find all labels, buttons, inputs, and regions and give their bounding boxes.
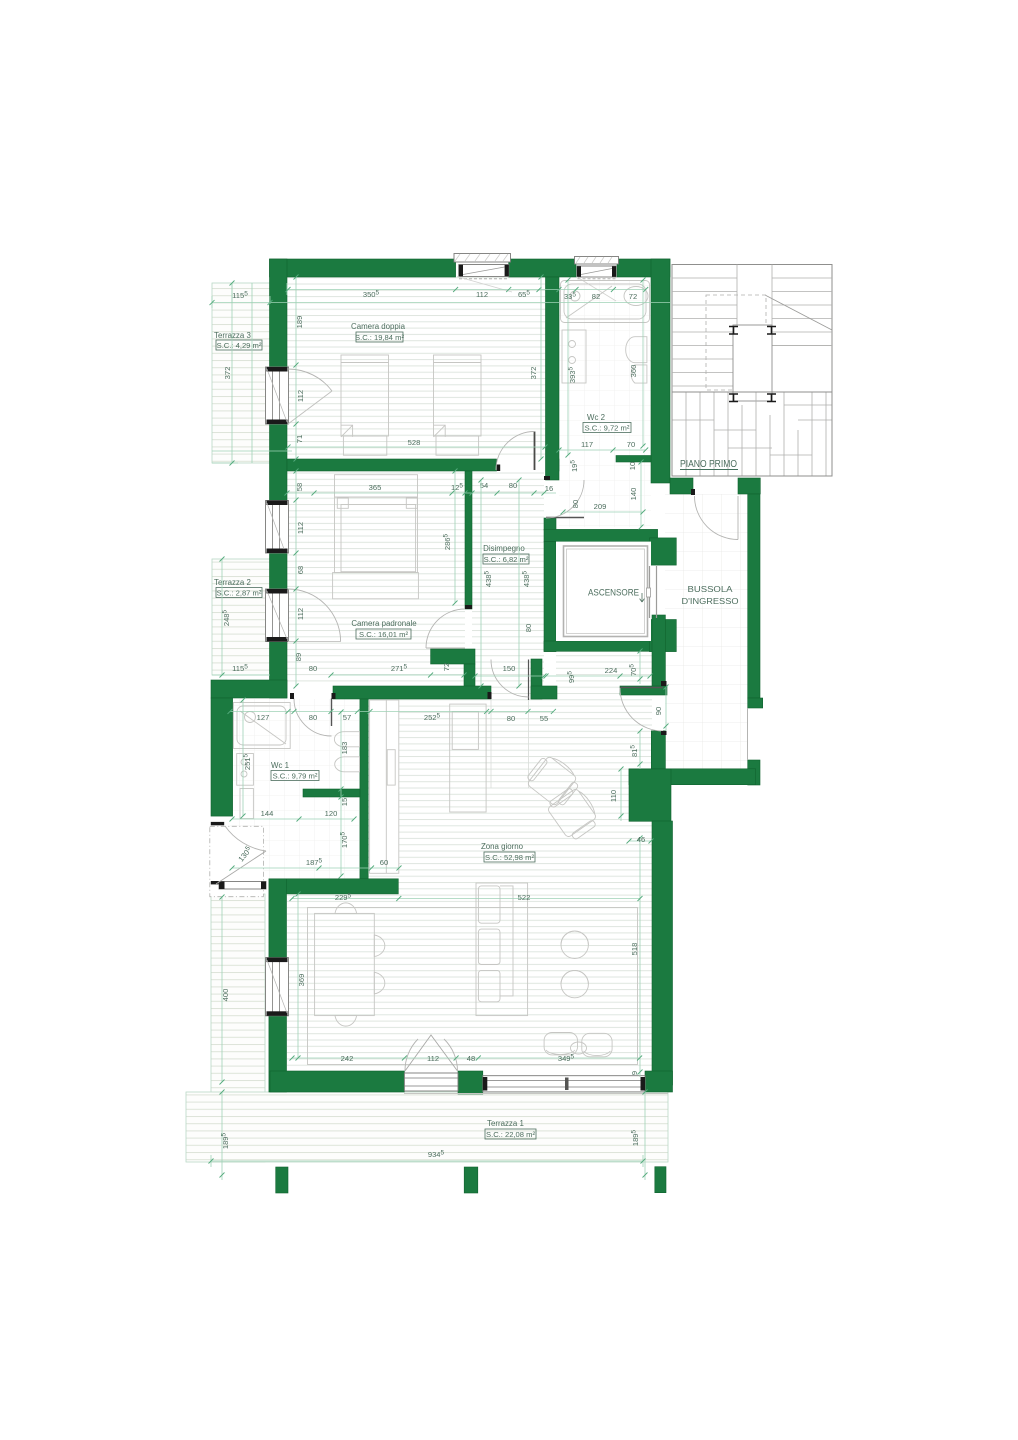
svg-text:S.C.: 52,98 m²: S.C.: 52,98 m² [485, 853, 534, 862]
svg-text:112: 112 [427, 1054, 439, 1063]
svg-text:ASCENSORE: ASCENSORE [588, 588, 639, 598]
svg-text:224: 224 [605, 666, 618, 675]
svg-text:15: 15 [340, 798, 349, 806]
svg-text:Zona giorno: Zona giorno [481, 842, 524, 851]
svg-text:112: 112 [296, 608, 305, 620]
svg-text:127: 127 [257, 713, 270, 722]
svg-text:S.C.: 16,01 m²: S.C.: 16,01 m² [359, 630, 408, 639]
svg-text:112: 112 [296, 522, 305, 534]
svg-text:Camera doppia: Camera doppia [351, 322, 406, 331]
svg-text:72: 72 [442, 663, 451, 671]
svg-text:80: 80 [509, 481, 517, 490]
svg-text:528: 528 [408, 438, 421, 447]
svg-text:55: 55 [540, 714, 548, 723]
svg-text:BUSSOLA: BUSSOLA [688, 585, 734, 594]
svg-text:365: 365 [369, 483, 382, 492]
svg-text:372: 372 [529, 367, 538, 380]
svg-text:Camera padronale: Camera padronale [351, 619, 417, 628]
svg-text:71: 71 [295, 435, 304, 443]
svg-text:72: 72 [629, 292, 637, 301]
svg-text:144: 144 [261, 809, 274, 818]
svg-text:9: 9 [630, 1071, 639, 1075]
svg-text:369: 369 [297, 974, 306, 987]
svg-text:183: 183 [340, 742, 349, 755]
svg-text:16: 16 [545, 484, 553, 493]
svg-text:117: 117 [581, 440, 593, 449]
svg-text:60: 60 [380, 858, 388, 867]
svg-text:S.C.: 4,29 m²: S.C.: 4,29 m² [217, 341, 262, 350]
svg-text:Wc 2: Wc 2 [587, 413, 605, 422]
svg-text:S.C.: 19,84 m²: S.C.: 19,84 m² [355, 333, 404, 342]
svg-text:Terrazza 3: Terrazza 3 [214, 331, 251, 340]
svg-text:Terrazza 1: Terrazza 1 [487, 1119, 524, 1128]
svg-text:120: 120 [325, 809, 338, 818]
svg-text:S.C.: 9,72 m²: S.C.: 9,72 m² [585, 424, 630, 433]
svg-text:80: 80 [524, 624, 533, 632]
svg-text:10: 10 [628, 462, 637, 470]
svg-text:112: 112 [296, 390, 305, 402]
svg-text:80: 80 [309, 713, 317, 722]
svg-text:57: 57 [343, 713, 351, 722]
svg-text:48: 48 [467, 1054, 475, 1063]
svg-text:68: 68 [296, 566, 305, 574]
svg-text:82: 82 [592, 292, 600, 301]
svg-text:70: 70 [627, 440, 635, 449]
svg-text:360: 360 [629, 365, 638, 378]
svg-text:518: 518 [630, 943, 639, 956]
svg-text:80: 80 [571, 500, 580, 508]
svg-text:80: 80 [507, 714, 515, 723]
svg-text:522: 522 [518, 893, 531, 902]
svg-text:PIANO PRIMO: PIANO PRIMO [680, 458, 737, 470]
svg-text:189: 189 [295, 316, 304, 329]
svg-text:400: 400 [221, 989, 230, 1002]
svg-text:D'INGRESSO: D'INGRESSO [682, 597, 739, 606]
svg-text:S.C.: 6,82 m²: S.C.: 6,82 m² [484, 555, 529, 564]
svg-text:242: 242 [341, 1054, 354, 1063]
svg-text:Terrazza 2: Terrazza 2 [214, 578, 251, 587]
svg-text:46: 46 [637, 835, 645, 844]
svg-text:80: 80 [309, 664, 317, 673]
svg-text:S.C.: 22,08 m²: S.C.: 22,08 m² [486, 1130, 535, 1139]
svg-text:209: 209 [594, 502, 607, 511]
svg-text:140: 140 [629, 488, 638, 501]
svg-text:372: 372 [223, 367, 232, 380]
svg-text:112: 112 [476, 290, 488, 299]
svg-text:S.C.: 9,79 m²: S.C.: 9,79 m² [273, 772, 318, 781]
svg-text:Wc 1: Wc 1 [271, 761, 289, 770]
svg-text:89: 89 [294, 653, 303, 661]
svg-text:150: 150 [503, 664, 516, 673]
svg-text:S.C.: 2,87 m²: S.C.: 2,87 m² [217, 589, 262, 598]
svg-text:110: 110 [609, 790, 618, 802]
svg-text:90: 90 [654, 707, 663, 715]
